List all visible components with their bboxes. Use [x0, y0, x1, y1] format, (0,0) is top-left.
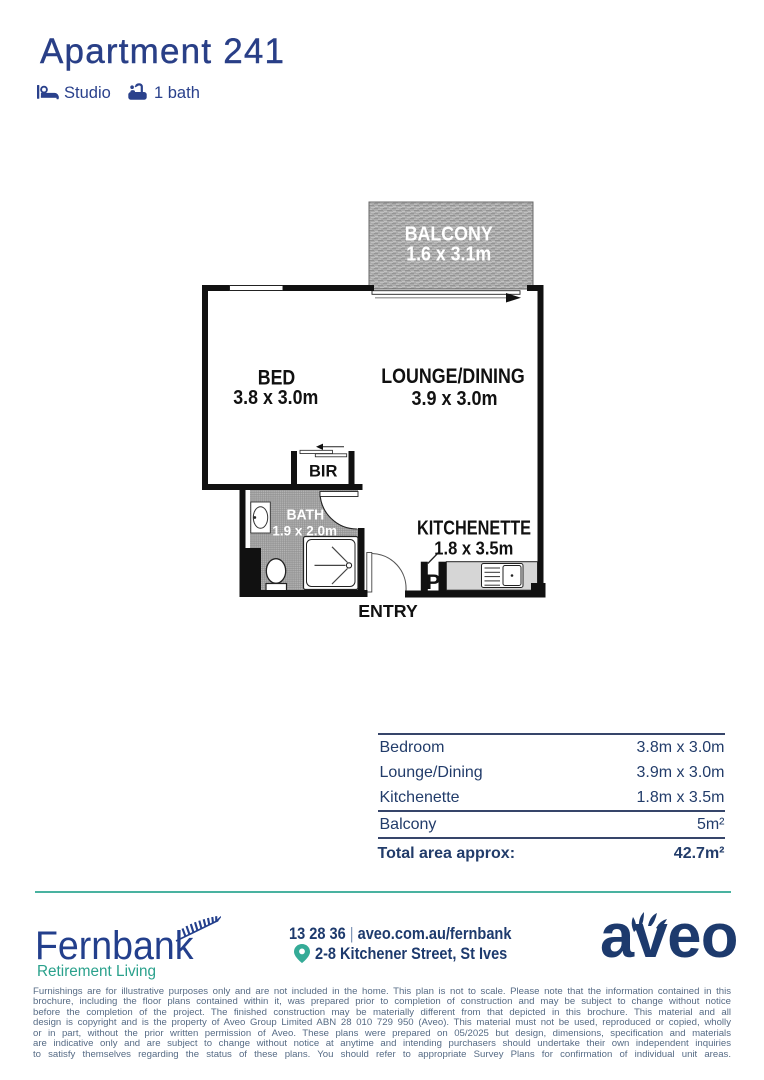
svg-text:BIR: BIR — [309, 463, 338, 481]
svg-text:P: P — [426, 570, 440, 594]
svg-text:3.9 x 3.0m: 3.9 x 3.0m — [412, 388, 498, 410]
svg-text:BED: BED — [258, 366, 296, 389]
svg-text:KITCHENETTE: KITCHENETTE — [417, 518, 531, 540]
svg-text:1.9 x 2.0m: 1.9 x 2.0m — [272, 522, 337, 538]
svg-text:ENTRY: ENTRY — [358, 601, 418, 621]
svg-text:LOUNGE/DINING: LOUNGE/DINING — [381, 365, 524, 388]
svg-text:BATH: BATH — [286, 507, 324, 523]
svg-text:1.6 x 3.1m: 1.6 x 3.1m — [406, 244, 491, 266]
svg-text:3.8 x 3.0m: 3.8 x 3.0m — [233, 387, 318, 409]
svg-text:1.8 x 3.5m: 1.8 x 3.5m — [434, 537, 513, 558]
svg-text:BALCONY: BALCONY — [405, 223, 494, 245]
